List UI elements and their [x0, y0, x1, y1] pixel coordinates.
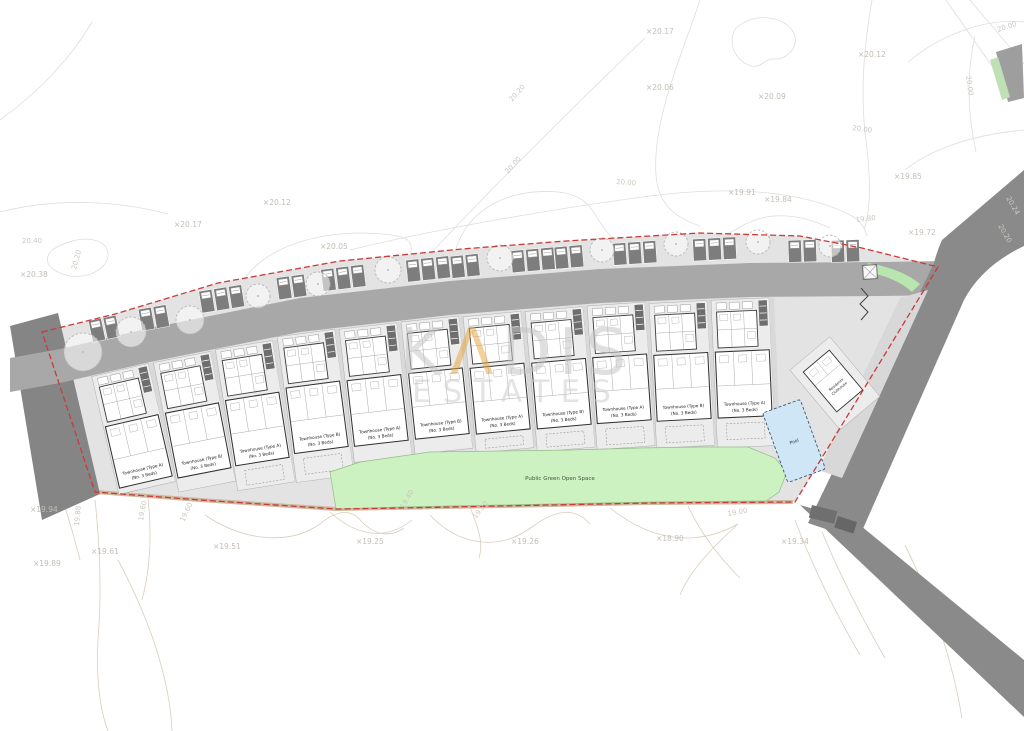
spot-elevation: ×19.34: [781, 537, 809, 546]
spot-elevation: ×19.61: [91, 547, 119, 556]
parking-bay-group: [406, 256, 451, 282]
spot-elevation: ×20.38: [20, 270, 48, 279]
spot-elevation: ×19.72: [908, 228, 936, 237]
contour-label: 20.00: [616, 178, 637, 187]
contour-label: 19.00: [727, 507, 748, 518]
contour-label: 19.60: [137, 500, 148, 521]
parking-bay-group: [613, 241, 657, 266]
spot-elevation: ×20.05: [320, 242, 348, 251]
townhouse-unit: Townhouse (Type B)(No. 3 Beds): [649, 300, 720, 448]
contour-label: 20.40: [22, 237, 42, 245]
spot-elevation: ×19.84: [764, 195, 792, 204]
spot-elevation: ×19.94: [30, 505, 58, 514]
open-space-label: Public Green Open Space: [525, 476, 595, 482]
contour-label: 19.88: [73, 506, 83, 527]
contour-label: 19.80: [855, 214, 876, 224]
spot-elevation: ×19.85: [894, 172, 922, 181]
spot-elevation: ×19.89: [33, 559, 61, 568]
spot-elevation: ×20.06: [646, 83, 674, 92]
spot-elevation: ×19.91: [728, 188, 756, 197]
contour-label: 20.00: [964, 75, 975, 96]
spot-elevation: ×20.17: [174, 220, 202, 229]
substation-structure: [863, 265, 878, 280]
parking-bay-group: [511, 247, 556, 273]
spot-elevation: ×18.90: [656, 534, 684, 543]
watermark-word-estates: ESTATES: [412, 374, 622, 410]
spot-elevation: ×19.25: [356, 537, 384, 546]
spot-elevation: ×19.26: [511, 537, 539, 546]
road-bottom: [800, 505, 1024, 717]
contour-label: 20.20: [70, 249, 83, 270]
spot-elevation: ×20.17: [646, 27, 674, 36]
spot-elevation: ×20.12: [858, 50, 886, 59]
contour-label: 19.60: [179, 501, 195, 523]
site-plan-page: Townhouse (Type A)(No. 3 Beds)Townhouse …: [0, 0, 1024, 731]
spot-elevation: ×20.12: [263, 198, 291, 207]
spot-elevation: ×20.09: [758, 92, 786, 101]
spot-elevation: ×19.51: [213, 542, 241, 551]
contour-label: 20.20: [508, 83, 527, 103]
site-plan-drawing: Townhouse (Type A)(No. 3 Beds)Townhouse …: [0, 0, 1024, 731]
contour-label: 20.00: [852, 124, 873, 135]
contour-label: 20.00: [504, 155, 523, 175]
parking-bay-group: [693, 237, 737, 261]
watermark: KΛDIS ESTATES: [400, 316, 635, 410]
